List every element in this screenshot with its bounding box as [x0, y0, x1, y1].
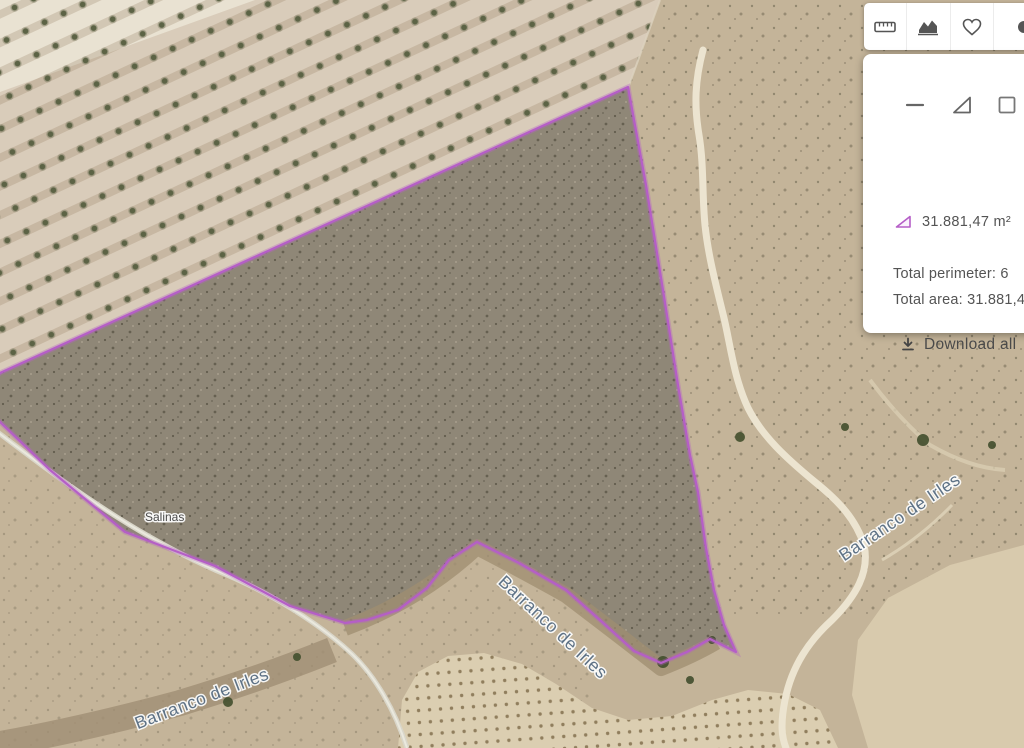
area-measure-icon	[951, 94, 973, 116]
more-tool-button[interactable]	[994, 3, 1024, 50]
rectangle-measure-button[interactable]	[994, 92, 1020, 118]
rectangle-measure-icon	[996, 94, 1018, 116]
measurement-value: 31.881,47 m²	[922, 214, 1011, 230]
app-window: { "toolbar": { "icons": ["ruler-icon", "…	[0, 0, 1024, 748]
area-measure-button[interactable]	[949, 92, 975, 118]
map-toolbar	[864, 3, 1024, 50]
download-label: Download all	[924, 336, 1016, 354]
measurement-row[interactable]: 31.881,47 m²	[895, 214, 1011, 230]
ruler-tool-button[interactable]	[864, 3, 907, 50]
favorite-heart-icon	[959, 14, 985, 40]
total-perimeter-text: Total perimeter: 6	[893, 261, 1024, 287]
total-area-text: Total area: 31.881,47 m²	[893, 287, 1024, 313]
elevation-profile-icon	[915, 14, 941, 40]
favorite-button[interactable]	[951, 3, 994, 50]
line-measure-icon	[904, 94, 926, 116]
map-label-salinas: Salinas	[145, 510, 184, 524]
area-measurement-icon	[895, 215, 912, 229]
download-icon	[899, 336, 917, 354]
download-all-button[interactable]: Download all	[899, 336, 1016, 354]
more-icon-partial	[1002, 14, 1024, 40]
measurement-panel: 31.881,47 m² Total perimeter: 6 Total ar…	[863, 54, 1024, 333]
ruler-icon	[872, 14, 898, 40]
measure-tools-row	[863, 92, 1024, 120]
elevation-profile-button[interactable]	[907, 3, 950, 50]
totals-block: Total perimeter: 6 Total area: 31.881,47…	[893, 261, 1024, 313]
line-measure-button[interactable]	[902, 92, 928, 118]
